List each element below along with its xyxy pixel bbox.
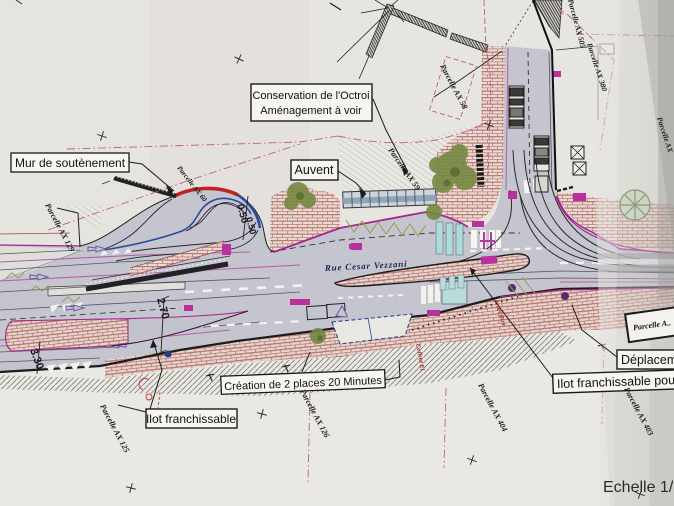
svg-text:Déplaceme: Déplaceme (621, 353, 674, 367)
svg-text:Mur de soutènement: Mur de soutènement (15, 156, 126, 170)
svg-text:Conservation de l'Octroi: Conservation de l'Octroi (252, 90, 369, 102)
svg-text:Auvent: Auvent (295, 163, 334, 177)
svg-text:Ilot franchissable: Ilot franchissable (146, 412, 236, 426)
svg-text:Aménagement à voir: Aménagement à voir (260, 105, 362, 117)
